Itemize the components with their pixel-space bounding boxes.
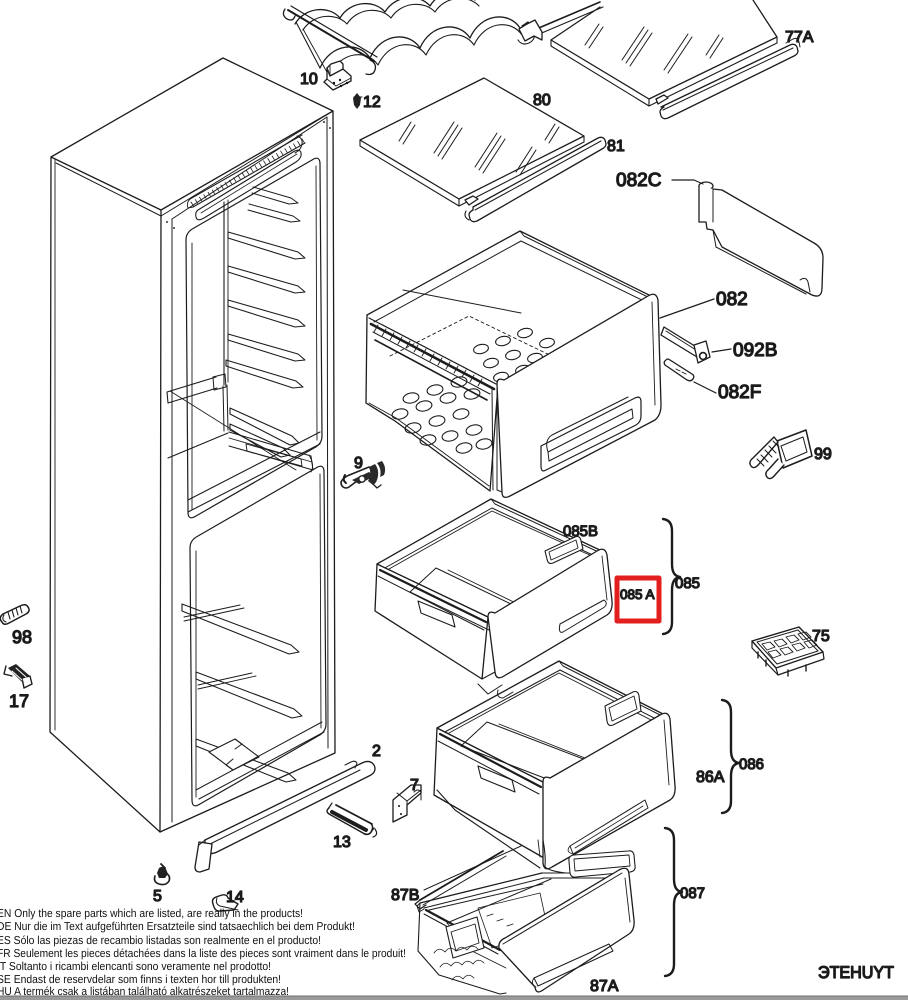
svg-text:ES Sólo las piezas de recambi: ES Sólo las piezas de recambio listadas … — [0, 935, 321, 947]
svg-text:085: 085 — [675, 575, 700, 592]
svg-text:FR Seulement les pieces détac: FR Seulement les pieces détachées dans l… — [0, 948, 406, 960]
svg-text:092B: 092B — [733, 340, 777, 361]
svg-text:12: 12 — [363, 94, 381, 111]
svg-text:086: 086 — [739, 756, 764, 773]
svg-text:81: 81 — [607, 138, 625, 155]
svg-text:5: 5 — [153, 888, 162, 905]
svg-text:SE Endast de reservdelar som: SE Endast de reservdelar som finns i tex… — [0, 974, 281, 986]
svg-text:DE Nur die im Text aufgeführt: DE Nur die im Text aufgeführten Ersatzte… — [0, 921, 355, 933]
svg-text:10: 10 — [300, 71, 318, 88]
svg-text:17: 17 — [9, 691, 29, 711]
svg-text:86A: 86A — [696, 769, 725, 786]
svg-text:13: 13 — [333, 834, 351, 851]
svg-text:77A: 77A — [785, 29, 814, 46]
svg-text:87B: 87B — [391, 887, 419, 904]
svg-text:99: 99 — [814, 446, 832, 463]
svg-text:082F: 082F — [718, 382, 761, 403]
svg-text:082C: 082C — [616, 170, 661, 191]
svg-text:87A: 87A — [590, 978, 619, 995]
svg-text:80: 80 — [533, 92, 551, 109]
svg-text:085B: 085B — [563, 523, 598, 540]
svg-text:087: 087 — [680, 885, 705, 902]
svg-text:ЭTEHUYT: ЭTEHUYT — [818, 963, 894, 982]
svg-text:98: 98 — [12, 627, 32, 647]
svg-text:14: 14 — [226, 889, 244, 906]
svg-text:085 A: 085 A — [620, 587, 655, 602]
svg-text:7: 7 — [410, 777, 419, 794]
svg-text:EN Only the spare parts which: EN Only the spare parts which are listed… — [0, 908, 303, 920]
svg-text:75: 75 — [812, 628, 830, 645]
svg-text:9: 9 — [354, 455, 363, 472]
svg-text:IT Soltanto i ricambi elencan: IT Soltanto i ricambi elencanti sono ver… — [0, 961, 271, 973]
svg-text:082: 082 — [716, 289, 748, 310]
svg-text:2: 2 — [372, 743, 381, 760]
